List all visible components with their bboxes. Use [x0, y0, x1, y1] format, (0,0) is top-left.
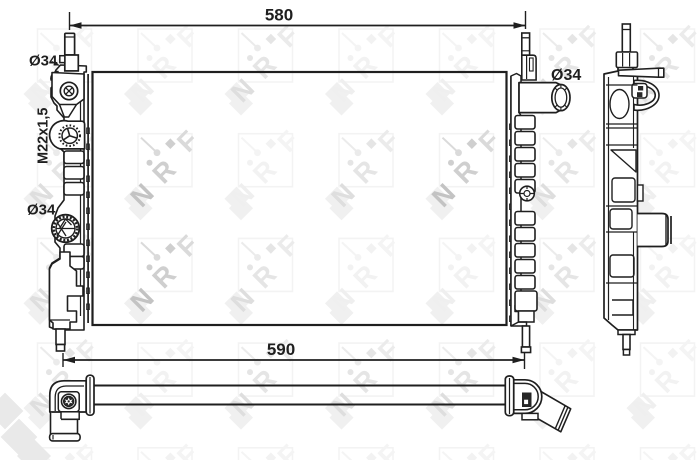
svg-text:590: 590	[267, 340, 295, 359]
svg-text:Ø34: Ø34	[29, 53, 58, 70]
svg-text:580: 580	[265, 6, 293, 25]
svg-text:Ø34: Ø34	[551, 67, 581, 84]
svg-text:Ø34: Ø34	[27, 202, 56, 219]
